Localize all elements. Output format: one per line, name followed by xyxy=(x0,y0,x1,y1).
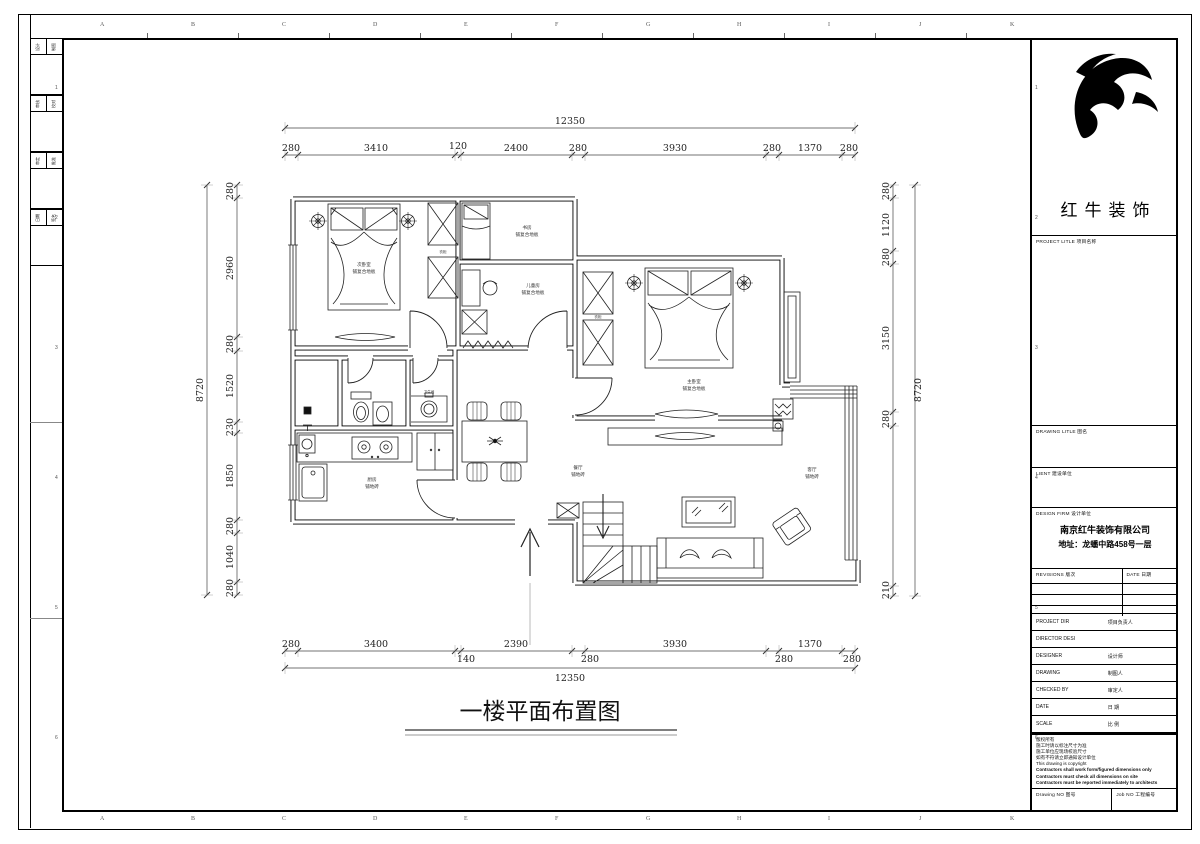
svg-text:280: 280 xyxy=(775,654,793,665)
kitchen-counter xyxy=(297,433,412,462)
fridge xyxy=(417,433,453,470)
svg-text:230: 230 xyxy=(225,418,236,436)
stove xyxy=(352,437,398,459)
washing-machine xyxy=(773,399,793,431)
svg-text:140: 140 xyxy=(457,654,475,665)
plan-title: 一楼平面布置图 xyxy=(460,699,621,725)
svg-text:3930: 3930 xyxy=(663,143,687,154)
svg-text:铺地砖: 铺地砖 xyxy=(571,471,585,478)
svg-text:客厅: 客厅 xyxy=(807,466,817,473)
svg-text:次卧室: 次卧室 xyxy=(357,261,371,268)
svg-text:280: 280 xyxy=(581,654,599,665)
round-basin xyxy=(411,393,447,422)
window-seat-bed2 xyxy=(335,334,395,341)
svg-text:12350: 12350 xyxy=(555,116,585,127)
svg-text:铺复合地板: 铺复合地板 xyxy=(353,268,376,275)
svg-text:2960: 2960 xyxy=(225,256,236,280)
svg-text:儿童房: 儿童房 xyxy=(526,282,540,289)
svg-text:1120: 1120 xyxy=(881,213,892,237)
svg-text:3400: 3400 xyxy=(364,639,388,650)
svg-text:书房: 书房 xyxy=(522,224,532,231)
svg-text:280: 280 xyxy=(840,143,858,154)
desk-kids xyxy=(462,270,497,306)
svg-text:280: 280 xyxy=(881,410,892,428)
svg-text:衣柜: 衣柜 xyxy=(439,249,447,254)
svg-text:2400: 2400 xyxy=(504,143,528,154)
svg-text:280: 280 xyxy=(225,579,236,597)
svg-text:280: 280 xyxy=(225,182,236,200)
toilet xyxy=(351,392,371,422)
svg-text:210: 210 xyxy=(881,581,892,599)
bay-window-master xyxy=(655,410,718,418)
stairs xyxy=(583,494,657,583)
bed-study xyxy=(462,203,490,259)
svg-text:铺复合地板: 铺复合地板 xyxy=(516,231,539,238)
svg-text:铺复合地板: 铺复合地板 xyxy=(683,385,706,392)
svg-text:2390: 2390 xyxy=(504,639,528,650)
svg-text:卫生间: 卫生间 xyxy=(424,389,435,394)
floor-plan: 12350 280 3410 120 2400 280 3930 280 137… xyxy=(0,0,1200,844)
svg-text:厨房: 厨房 xyxy=(367,476,377,483)
svg-text:8720: 8720 xyxy=(195,378,206,402)
ceiling-lamp-icon xyxy=(625,274,643,292)
bed-secondary xyxy=(328,204,400,310)
balcony-window-top xyxy=(790,386,857,398)
svg-text:3410: 3410 xyxy=(364,143,388,154)
coffee-table xyxy=(682,497,735,527)
svg-text:1520: 1520 xyxy=(225,374,236,398)
svg-text:1370: 1370 xyxy=(798,639,822,650)
svg-text:12350: 12350 xyxy=(555,673,585,684)
svg-text:280: 280 xyxy=(225,335,236,353)
svg-text:1850: 1850 xyxy=(225,464,236,488)
ceiling-lamp-icon xyxy=(309,212,327,230)
svg-text:1370: 1370 xyxy=(798,143,822,154)
svg-text:3930: 3930 xyxy=(663,639,687,650)
svg-text:衣柜: 衣柜 xyxy=(594,314,602,319)
balcony-window-right xyxy=(845,386,858,560)
svg-text:120: 120 xyxy=(449,141,467,152)
svg-text:280: 280 xyxy=(569,143,587,154)
svg-text:280: 280 xyxy=(843,654,861,665)
svg-text:280: 280 xyxy=(763,143,781,154)
svg-text:280: 280 xyxy=(225,517,236,535)
kitchen-sink xyxy=(299,464,327,501)
svg-text:280: 280 xyxy=(881,248,892,266)
plan-title-group: 一楼平面布置图 xyxy=(405,699,677,735)
sofa xyxy=(657,538,763,578)
bed-master xyxy=(645,268,733,368)
bay-window-side xyxy=(784,292,800,382)
washbasin xyxy=(373,402,392,425)
entry-arrow xyxy=(521,529,539,576)
svg-text:280: 280 xyxy=(282,639,300,650)
stair-arrow xyxy=(597,494,609,538)
svg-text:1040: 1040 xyxy=(225,545,236,569)
bench xyxy=(608,428,782,445)
ceiling-lamp-icon xyxy=(399,212,417,230)
svg-text:餐厅: 餐厅 xyxy=(573,464,583,471)
dining-chair xyxy=(467,463,487,481)
svg-text:主卧室: 主卧室 xyxy=(687,378,701,385)
svg-text:8720: 8720 xyxy=(913,378,924,402)
dining-chair xyxy=(501,402,521,420)
armchair xyxy=(772,507,812,546)
dining-chair xyxy=(467,402,487,420)
svg-text:铺地砖: 铺地砖 xyxy=(805,473,819,480)
svg-text:3150: 3150 xyxy=(881,326,892,350)
dining-table xyxy=(462,421,527,462)
drawing-sheet: ABCDEFGHIJK ABCDEFGHIJK 123456 123456 设计… xyxy=(0,0,1200,844)
room-labels: 次卧室 铺复合地板 书房 铺复合地板 儿童房 铺复合地板 主卧室 铺复合地板 厨… xyxy=(353,224,820,490)
ceiling-lamp-icon xyxy=(735,274,753,292)
svg-text:280: 280 xyxy=(282,143,300,154)
svg-text:280: 280 xyxy=(881,182,892,200)
dining-chair xyxy=(501,463,521,481)
svg-text:铺地砖: 铺地砖 xyxy=(365,483,379,490)
svg-text:铺复合地板: 铺复合地板 xyxy=(522,289,545,296)
